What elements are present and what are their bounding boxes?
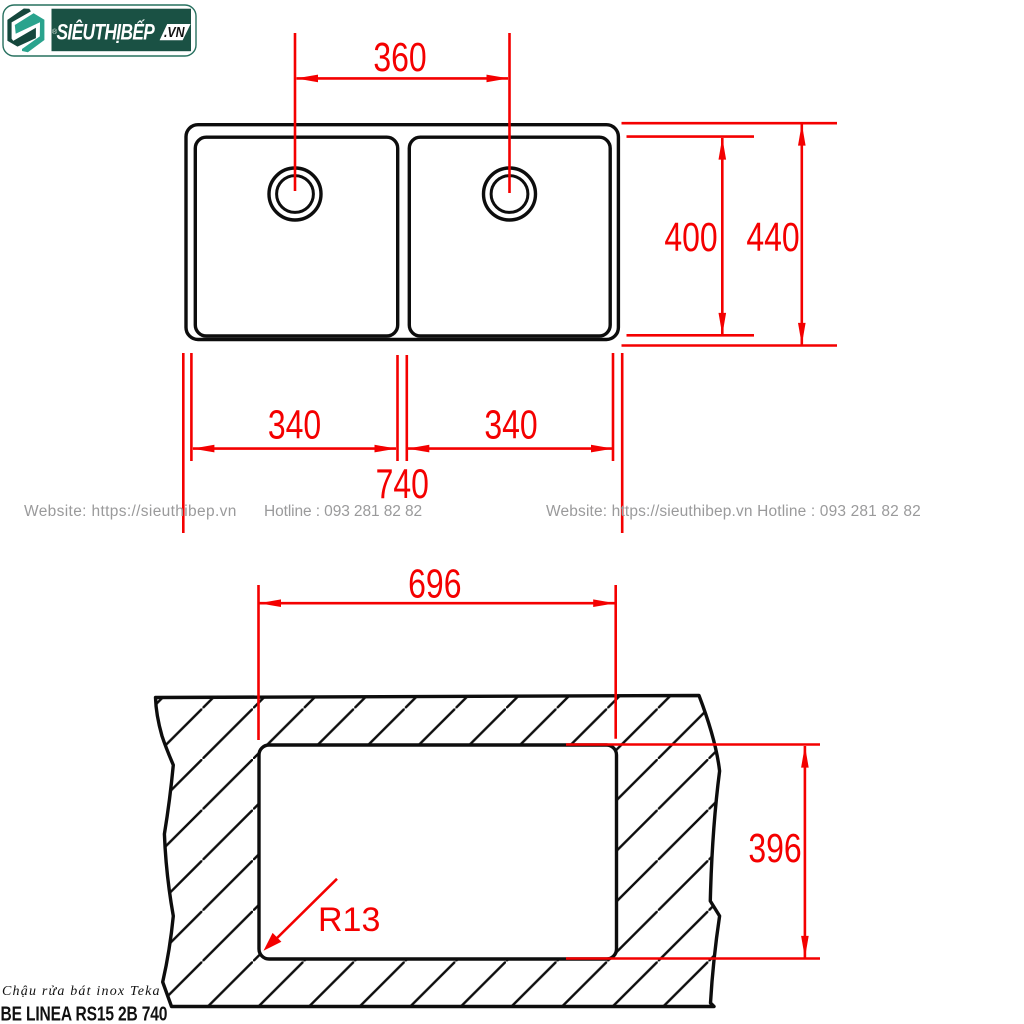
svg-text:Chậu rửa bát inox Teka: Chậu rửa bát inox Teka xyxy=(2,984,161,999)
svg-text:440: 440 xyxy=(746,214,799,260)
svg-text:400: 400 xyxy=(664,214,717,260)
svg-text:340: 340 xyxy=(268,402,321,448)
svg-text:.VN: .VN xyxy=(164,24,185,40)
svg-text:740: 740 xyxy=(376,460,429,507)
svg-text:696: 696 xyxy=(408,561,461,607)
svg-text:340: 340 xyxy=(484,402,537,448)
svg-text:BE LINEA RS15 2B 740: BE LINEA RS15 2B 740 xyxy=(1,1002,168,1024)
svg-text:360: 360 xyxy=(373,34,426,80)
svg-text:Website: https://sieuthibep.vn: Website: https://sieuthibep.vn xyxy=(24,503,237,520)
svg-text:R13: R13 xyxy=(318,901,380,939)
svg-text:Hotline : 093 281 82 82: Hotline : 093 281 82 82 xyxy=(264,503,422,520)
svg-text:SIÊUTHỊBẾP: SIÊUTHỊBẾP xyxy=(57,18,156,45)
svg-text:Website: https://sieuthibep.vn: Website: https://sieuthibep.vn Hotline :… xyxy=(546,503,921,520)
svg-text:396: 396 xyxy=(748,825,801,871)
